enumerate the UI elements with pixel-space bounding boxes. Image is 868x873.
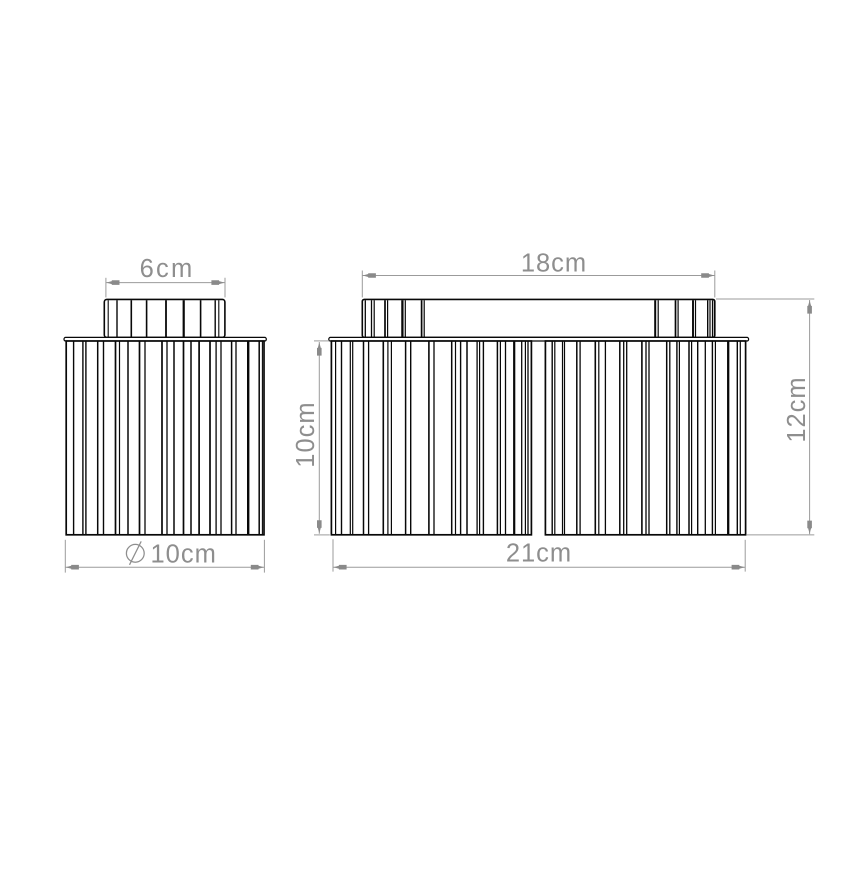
svg-text:21cm: 21cm <box>506 540 572 568</box>
svg-text:18cm: 18cm <box>521 249 587 277</box>
svg-text:10cm: 10cm <box>151 540 217 568</box>
svg-text:6cm: 6cm <box>140 255 195 283</box>
svg-text:10cm: 10cm <box>292 401 320 467</box>
svg-text:12cm: 12cm <box>783 376 811 442</box>
